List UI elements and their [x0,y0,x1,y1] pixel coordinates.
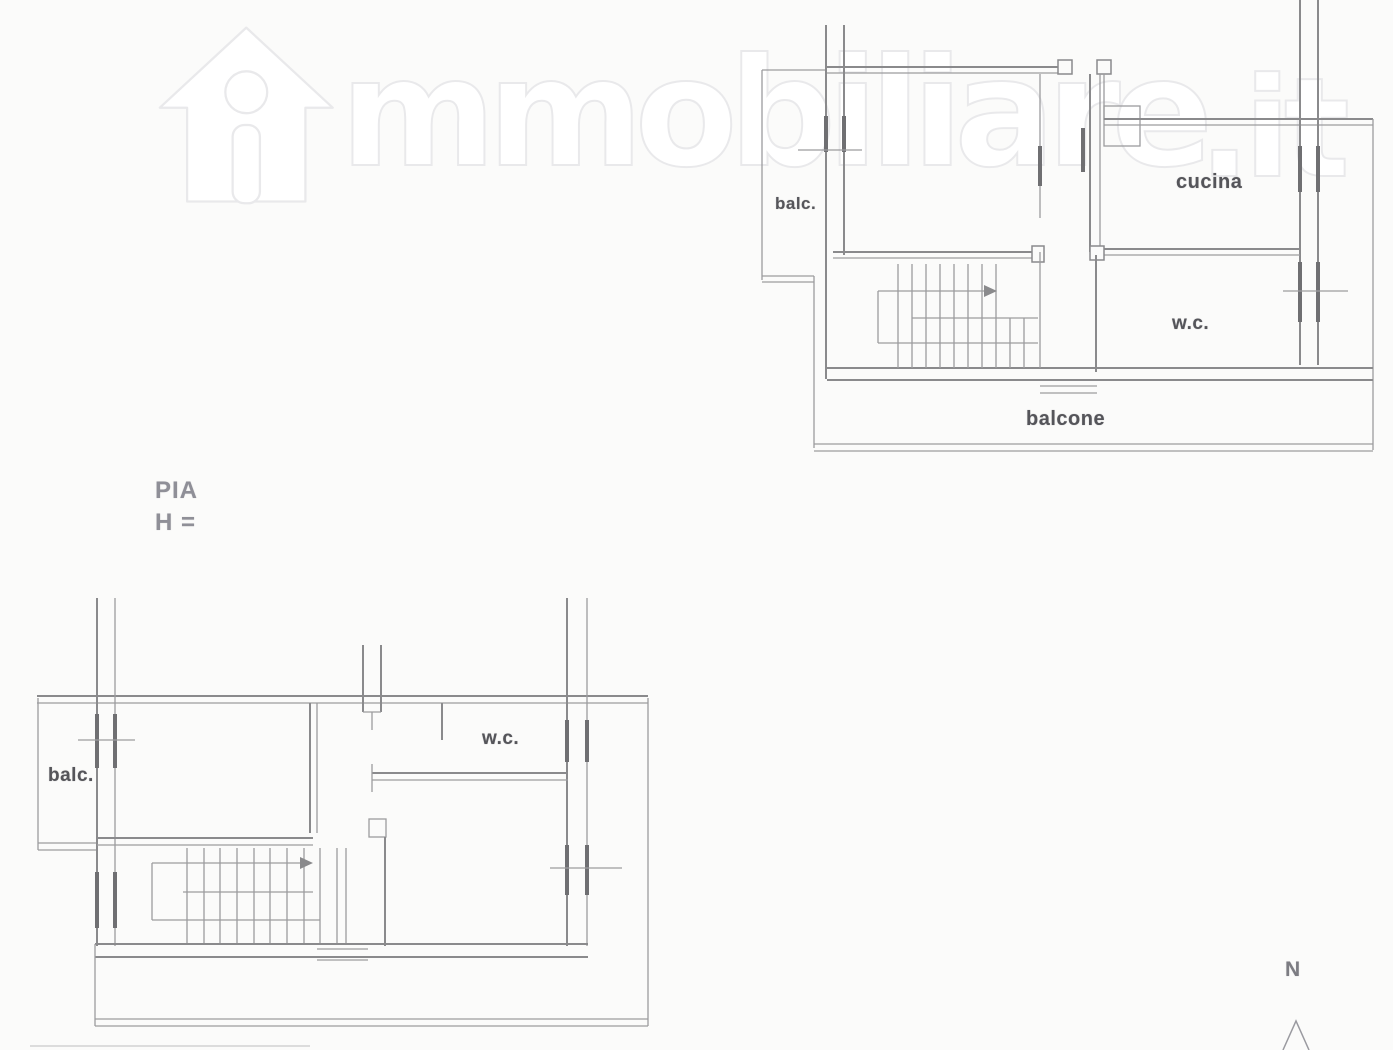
north-arrow-icon [1283,1021,1309,1050]
lower-plan-wc-label: w.c. [482,728,519,750]
upper-plan-drawing [762,0,1373,451]
plan-caption-line2: H = [155,507,198,539]
north-label: N [1285,958,1300,982]
upper-plan-balcony-label: balc. [775,194,816,214]
lower-plan-drawing [30,598,648,1046]
upper-plan-kitchen-label: cucina [1176,171,1242,194]
floor-plan-linework [0,0,1393,1050]
upper-plan-wc-label: w.c. [1172,313,1209,335]
plan-caption-line1: PIA [155,475,198,507]
upper-plan-balcone-label: balcone [1026,408,1105,431]
floorplan-scan-page: mmobiliare.it [0,0,1393,1050]
lower-plan-balcony-label: balc. [48,765,94,787]
plan-caption: PIA H = [155,475,198,539]
